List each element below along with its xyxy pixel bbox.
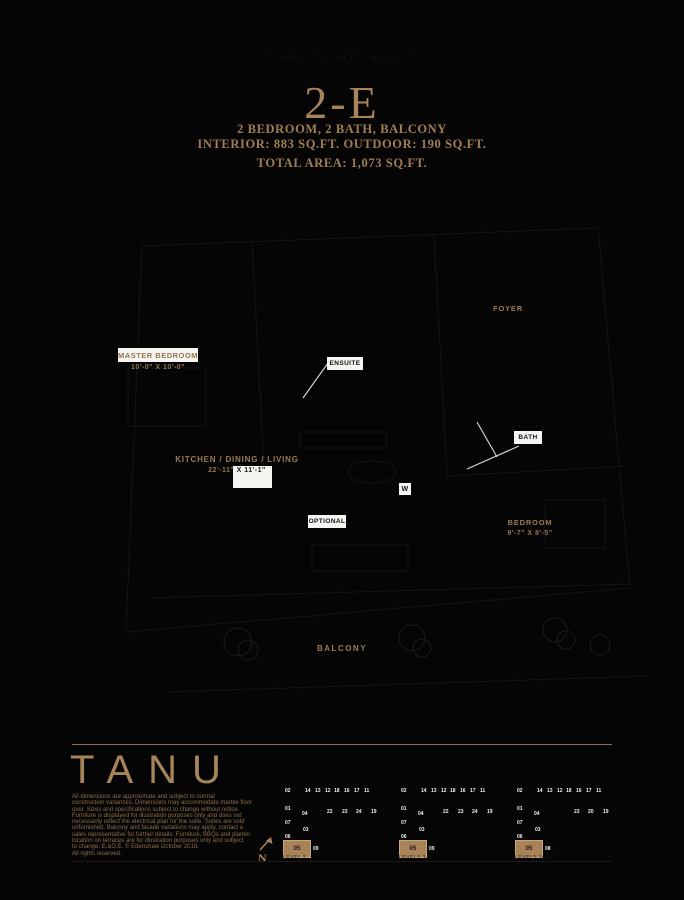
keyplan-unit: 04 <box>534 811 540 817</box>
kitchen-dims-right: X 11'-1" <box>237 467 266 474</box>
disclaimer-line: All rights reserved. <box>72 851 258 857</box>
keyplan-unit: 07 <box>517 820 523 826</box>
keyplan-unit: 16 <box>460 788 466 794</box>
keyplan-unit: 01 <box>517 806 523 812</box>
keyplan-unit: 23 <box>574 809 580 815</box>
kitchen-dims-left: 22'-11" <box>208 467 236 474</box>
keyplan-unit: 11 <box>596 788 601 794</box>
keyplan-unit: 09 <box>313 846 319 852</box>
leader-lines <box>303 363 519 469</box>
keyplan-unit: 18 <box>334 788 340 794</box>
keyplan-unit: 11 <box>480 788 485 794</box>
keyplan-unit: 17 <box>354 788 360 794</box>
keyplan-unit: 14 <box>421 788 427 794</box>
keyplan-unit: 08 <box>545 846 551 852</box>
washer-label: W <box>399 483 411 495</box>
keyplan-unit: 16 <box>344 788 350 794</box>
keyplan-unit: 14 <box>305 788 311 794</box>
keyplan-unit: 12 <box>441 788 447 794</box>
disclaimer-line: construction variances. Dimensions may a… <box>72 800 258 806</box>
balcony-plants <box>224 618 610 660</box>
keyplan-unit: 13 <box>315 788 321 794</box>
keyplan-unit: 02 <box>401 788 407 794</box>
keyplan-unit: 24 <box>356 809 362 815</box>
keyplan-unit: 07 <box>401 820 407 826</box>
keyplan-level-2: 02141312181617110104222324190703060509LE… <box>399 784 503 862</box>
keyplan-unit: 02 <box>517 788 523 794</box>
keyplan-unit: 12 <box>557 788 563 794</box>
keyplan-unit: 23 <box>342 809 348 815</box>
kitchen-dining-living-label: KITCHEN / DINING / LIVING <box>157 455 317 464</box>
disclaimer-line: unfurnished. Balcony and facade variatio… <box>72 825 258 831</box>
keyplan-unit: 03 <box>419 827 425 833</box>
keyplan-unit: 04 <box>418 811 424 817</box>
keyplan-unit: 03 <box>303 827 309 833</box>
keyplan-unit: 04 <box>302 811 308 817</box>
keyplan-level-3: 021413121816171101042320190703060508LEVE… <box>515 784 619 862</box>
kitchen-dims: 22'-11" X 11'-1" <box>157 467 317 474</box>
keyplan-unit: 01 <box>285 806 291 812</box>
bath-label: BATH <box>514 431 542 444</box>
keyplan-unit: 02 <box>285 788 291 794</box>
keyplan-unit: 18 <box>566 788 572 794</box>
keyplan-unit: 09 <box>429 846 435 852</box>
keyplan-unit: 11 <box>364 788 369 794</box>
keyplan-unit: 20 <box>588 809 594 815</box>
ensuite-label: ENSUITE <box>327 357 363 370</box>
keyplan-unit: 17 <box>586 788 592 794</box>
keyplan-unit: 19 <box>603 809 609 815</box>
optional-label: OPTIONAL <box>308 515 346 528</box>
keyplan-unit: 01 <box>401 806 407 812</box>
keyplan-unit: 03 <box>535 827 541 833</box>
compass-n-label: N <box>258 851 267 865</box>
footer-top-rule <box>72 744 612 745</box>
keyplan-unit: 12 <box>325 788 331 794</box>
master-bedroom-label: MASTER BEDROOM <box>118 348 198 362</box>
footer-bottom-rule <box>72 861 612 862</box>
keyplan-unit: 19 <box>487 809 493 815</box>
keyplan-unit: 18 <box>450 788 456 794</box>
keyplan-unit: 16 <box>576 788 582 794</box>
keyplan-unit: 13 <box>431 788 437 794</box>
foyer-label: FOYER <box>473 304 543 313</box>
tanu-logo: TANU <box>70 748 236 793</box>
disclaimer-line: over. Sizes and specifications subject t… <box>72 807 258 813</box>
keyplan-unit: 13 <box>547 788 553 794</box>
keyplan-unit: 22 <box>327 809 333 815</box>
floorplan-sheet: TANU | PORT CREDIT 2-E 2 BEDROOM, 2 BATH… <box>0 0 684 900</box>
keyplan-unit: 14 <box>537 788 543 794</box>
keyplan-unit: 19 <box>371 809 377 815</box>
keyplan-unit: 22 <box>443 809 449 815</box>
bedroom-label: BEDROOM <box>490 518 570 527</box>
keyplan-unit: 07 <box>285 820 291 826</box>
balcony-label: BALCONY <box>300 644 384 653</box>
disclaimer: All dimensions are approximate and subje… <box>72 794 258 857</box>
master-bedroom-dims: 10'-0" X 10'-0" <box>118 364 198 371</box>
keyplan-level-1: 02141312181617110104222324190703060509LE… <box>283 784 387 862</box>
keyplan-unit: 24 <box>472 809 478 815</box>
bedroom-dims: 9'-7" X 8'-5" <box>490 530 570 537</box>
keyplan-unit: 23 <box>458 809 464 815</box>
keyplan-unit: 17 <box>470 788 476 794</box>
